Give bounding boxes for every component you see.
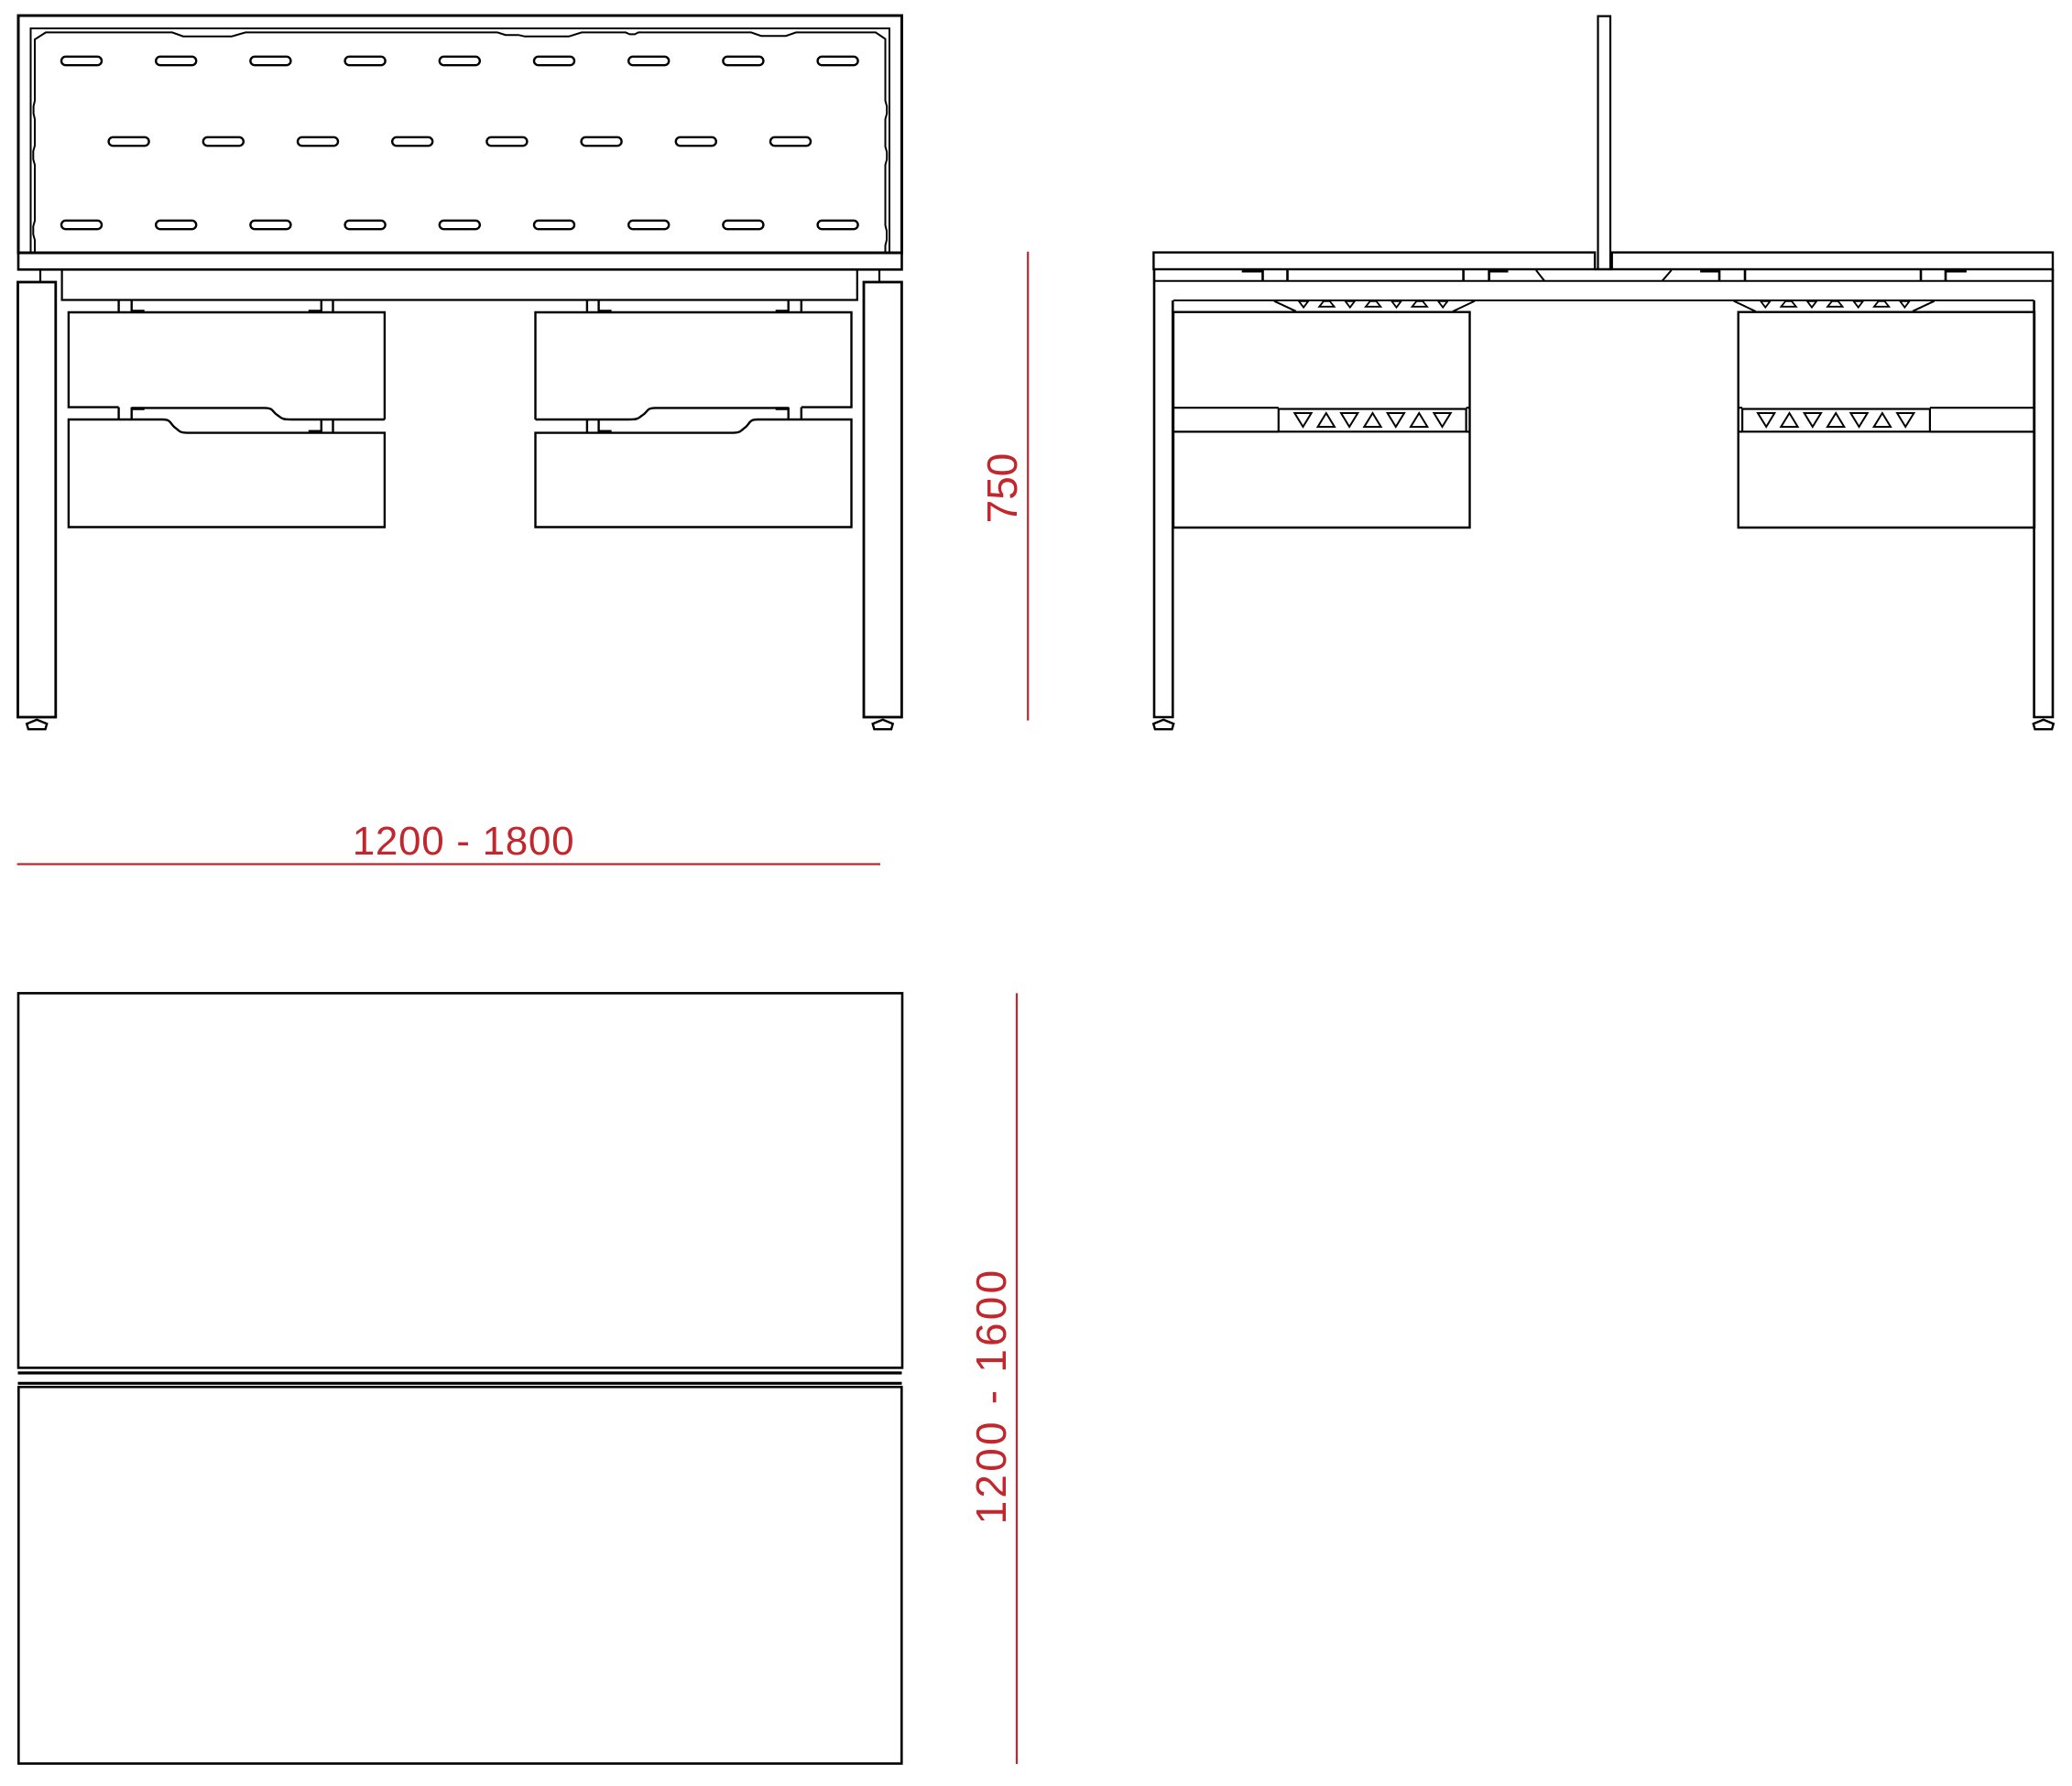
svg-text:1200 - 1800: 1200 - 1800 bbox=[353, 819, 575, 864]
svg-text:750: 750 bbox=[978, 453, 1026, 524]
svg-text:1200 - 1600: 1200 - 1600 bbox=[967, 1268, 1015, 1525]
